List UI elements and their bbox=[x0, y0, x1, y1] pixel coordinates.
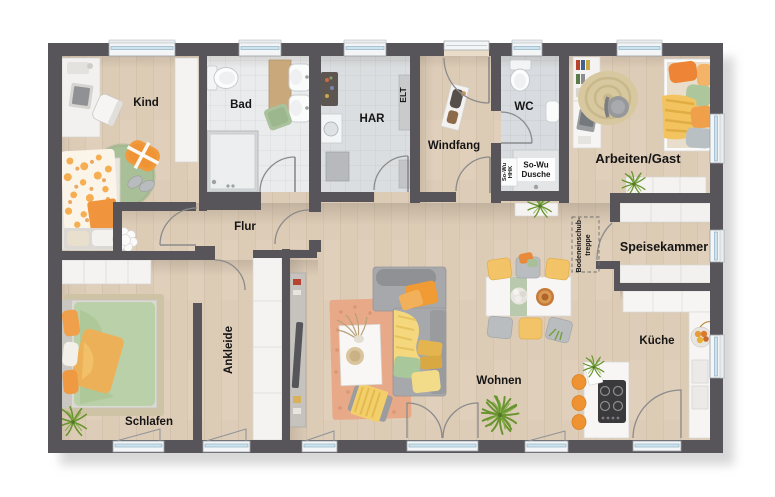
svg-text:Dusche: Dusche bbox=[522, 170, 551, 179]
svg-text:Speisekammer: Speisekammer bbox=[620, 240, 708, 254]
svg-text:WC: WC bbox=[514, 101, 533, 113]
svg-text:So-Wu: So-Wu bbox=[523, 161, 548, 170]
svg-text:Kind: Kind bbox=[133, 97, 159, 109]
svg-text:Bodeneinschub-: Bodeneinschub- bbox=[576, 217, 583, 273]
svg-text:Wohnen: Wohnen bbox=[476, 375, 521, 387]
svg-text:Küche: Küche bbox=[639, 335, 674, 347]
svg-text:HHK: HHK bbox=[508, 165, 514, 178]
svg-text:Arbeiten/Gast: Arbeiten/Gast bbox=[595, 151, 681, 166]
svg-text:ELT: ELT bbox=[398, 86, 408, 102]
svg-text:Windfang: Windfang bbox=[428, 140, 480, 152]
svg-text:treppe: treppe bbox=[585, 234, 592, 256]
svg-text:HAR: HAR bbox=[360, 113, 386, 125]
svg-text:Ankleide: Ankleide bbox=[223, 326, 235, 374]
svg-text:Bad: Bad bbox=[230, 99, 252, 111]
svg-text:Flur: Flur bbox=[234, 221, 256, 233]
svg-text:Schlafen: Schlafen bbox=[125, 416, 173, 428]
